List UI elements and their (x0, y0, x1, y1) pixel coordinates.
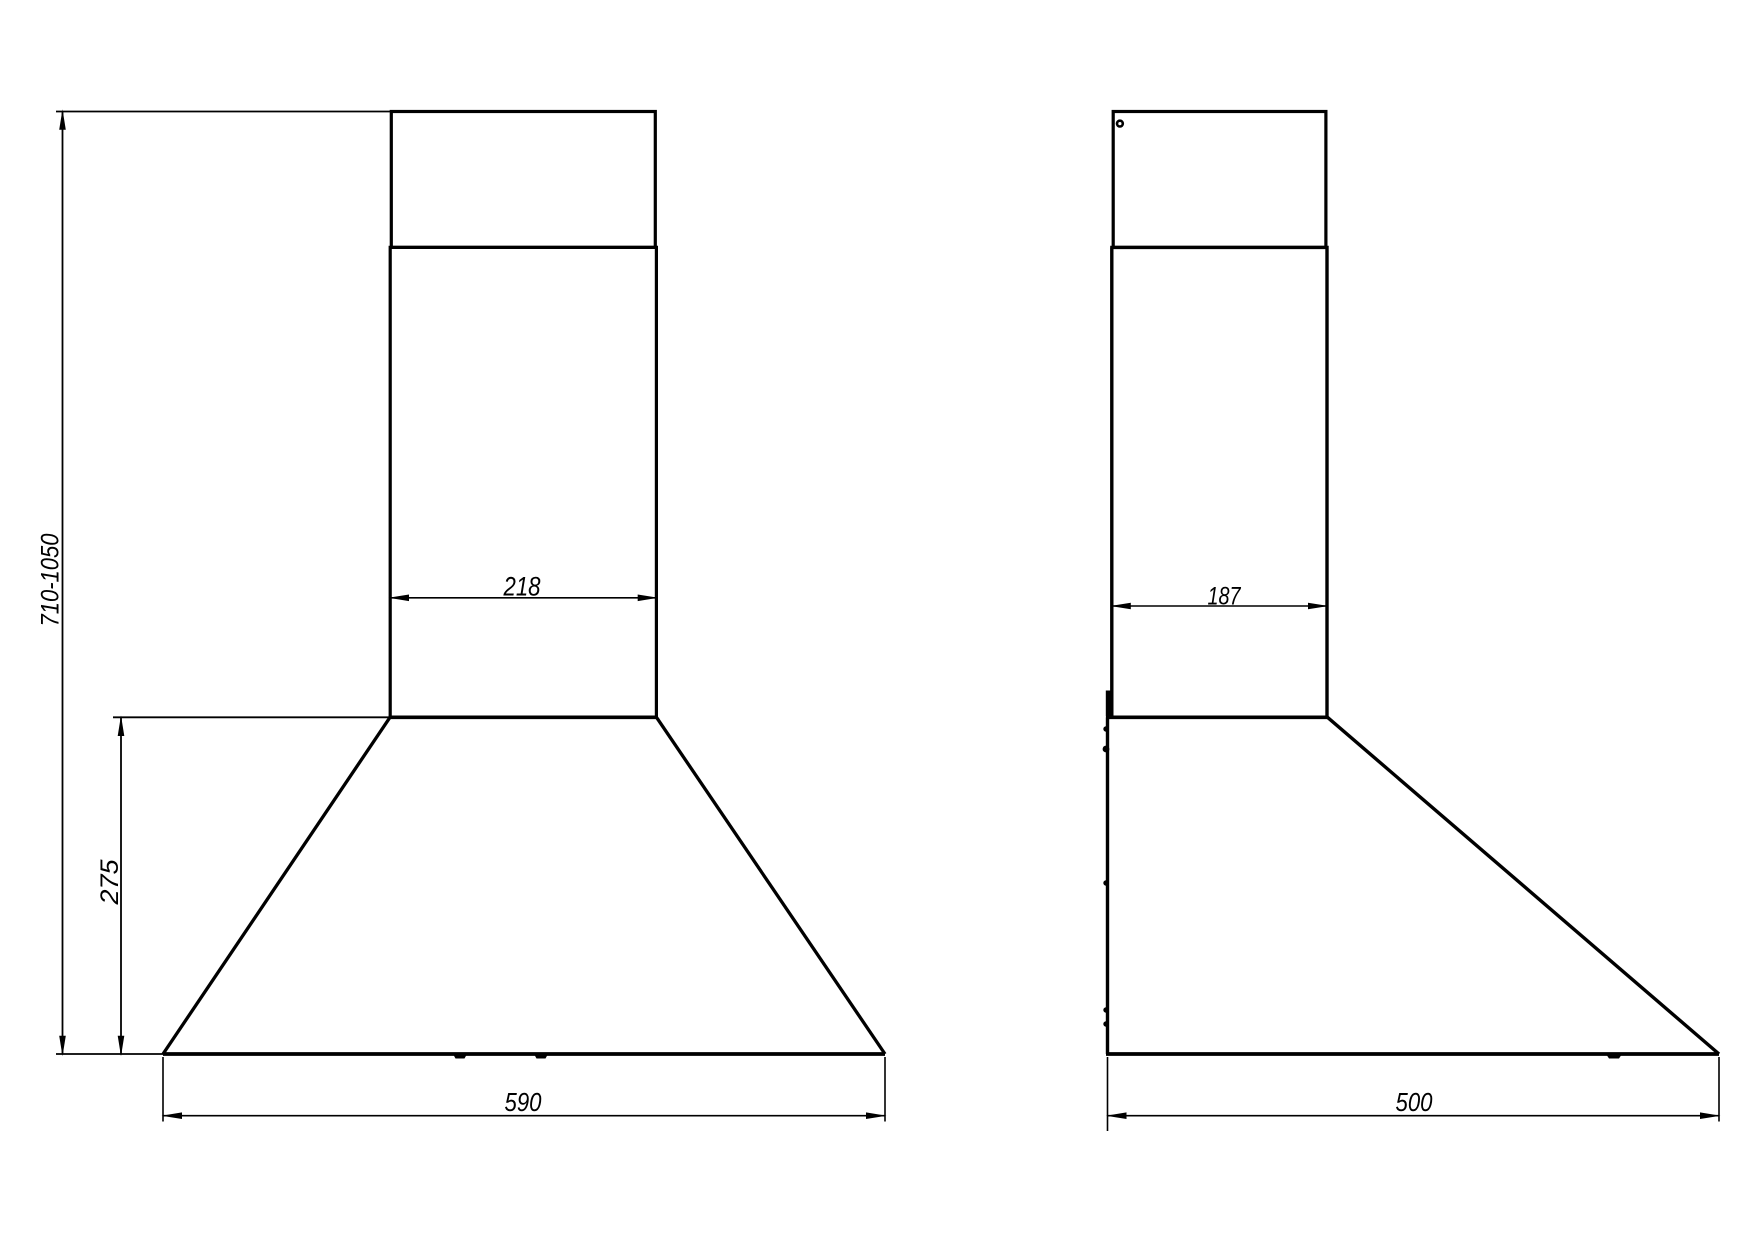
svg-text:590: 590 (505, 1087, 542, 1117)
svg-text:710-1050: 710-1050 (37, 533, 65, 626)
svg-text:218: 218 (503, 572, 541, 602)
svg-text:500: 500 (1396, 1087, 1433, 1117)
svg-text:187: 187 (1208, 583, 1242, 611)
svg-text:275: 275 (96, 859, 124, 905)
